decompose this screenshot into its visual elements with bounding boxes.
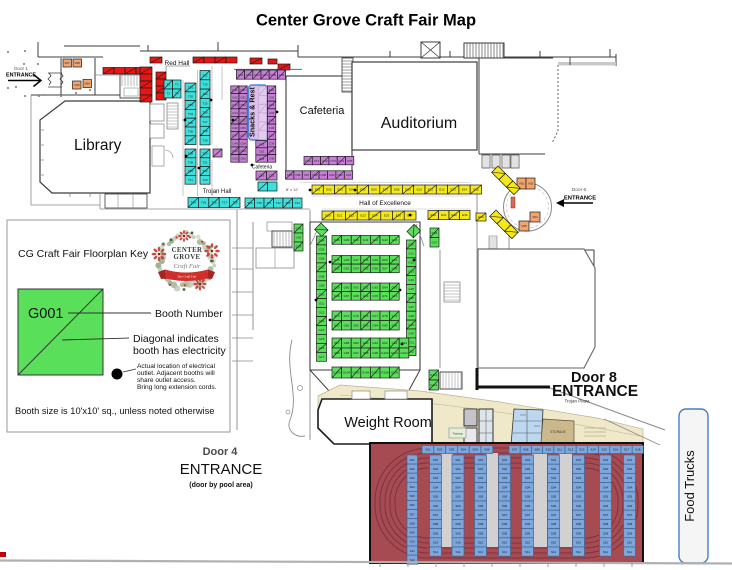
- svg-text:G70: G70: [372, 294, 378, 298]
- svg-text:V04: V04: [85, 82, 91, 86]
- svg-text:S09: S09: [525, 531, 531, 535]
- svg-text:C40: C40: [269, 157, 275, 161]
- svg-text:G77: G77: [372, 314, 378, 318]
- svg-text:S10: S10: [551, 541, 557, 545]
- svg-text:S11: S11: [603, 550, 608, 554]
- svg-text:G69: G69: [363, 294, 369, 298]
- svg-text:G05: G05: [319, 248, 325, 252]
- svg-text:G39: G39: [344, 238, 350, 242]
- svg-text:S06: S06: [433, 504, 439, 508]
- svg-text:S09: S09: [433, 531, 439, 535]
- svg-text:T01: T01: [188, 86, 194, 90]
- svg-text:C85: C85: [287, 173, 293, 177]
- svg-text:S07: S07: [627, 513, 633, 517]
- svg-text:S03: S03: [410, 476, 416, 480]
- svg-text:G92: G92: [382, 341, 388, 345]
- svg-text:S08: S08: [523, 448, 529, 452]
- svg-text:S10: S10: [433, 541, 439, 545]
- svg-text:E02: E02: [326, 188, 332, 192]
- svg-text:S06: S06: [455, 504, 461, 508]
- svg-text:E07: E07: [383, 188, 389, 192]
- svg-text:ENTRANCE: ENTRANCE: [564, 196, 596, 202]
- svg-text:G24: G24: [408, 278, 414, 282]
- svg-text:C31: C31: [269, 88, 275, 92]
- svg-text:S06: S06: [525, 504, 531, 508]
- svg-text:G97: G97: [353, 351, 359, 355]
- svg-text:S10: S10: [576, 541, 582, 545]
- svg-text:Cafeteria: Cafeteria: [300, 105, 346, 117]
- svg-text:G100: G100: [381, 351, 389, 355]
- svg-text:T17: T17: [202, 120, 208, 124]
- svg-text:S07: S07: [455, 513, 461, 517]
- svg-text:S08: S08: [502, 522, 508, 526]
- svg-text:T28: T28: [232, 201, 238, 205]
- svg-text:E01: E01: [315, 188, 321, 192]
- svg-text:G42: G42: [372, 238, 378, 242]
- svg-text:S04: S04: [576, 485, 582, 489]
- svg-text:G105: G105: [352, 371, 360, 375]
- svg-text:G61: G61: [353, 286, 359, 290]
- svg-text:S05: S05: [576, 495, 582, 499]
- svg-text:booth has electricity: booth has electricity: [133, 345, 227, 357]
- svg-text:G03: G03: [296, 245, 302, 249]
- svg-text:C01: C01: [238, 73, 244, 77]
- svg-text:T29: T29: [247, 201, 253, 205]
- svg-text:S04: S04: [551, 485, 557, 489]
- svg-text:T20: T20: [202, 152, 208, 156]
- svg-text:T09: T09: [188, 160, 194, 164]
- svg-text:G46: G46: [344, 258, 350, 262]
- svg-text:G66: G66: [334, 294, 340, 298]
- svg-text:G44: G44: [392, 238, 398, 242]
- svg-text:Door 1: Door 1: [14, 66, 28, 71]
- svg-text:S01: S01: [627, 458, 633, 462]
- svg-text:T31: T31: [266, 201, 272, 205]
- svg-text:S07: S07: [410, 512, 416, 516]
- svg-text:G86: G86: [392, 323, 398, 327]
- svg-text:S02: S02: [502, 467, 508, 471]
- svg-text:S18: S18: [635, 448, 641, 452]
- svg-text:S09: S09: [534, 448, 540, 452]
- svg-text:S07: S07: [433, 513, 439, 517]
- svg-text:T30: T30: [257, 201, 263, 205]
- svg-text:T15: T15: [202, 101, 208, 105]
- svg-text:S05: S05: [478, 495, 484, 499]
- svg-text:G111: G111: [430, 383, 437, 387]
- svg-text:S01: S01: [502, 458, 508, 462]
- svg-text:G60: G60: [344, 286, 350, 290]
- svg-text:G27: G27: [408, 305, 414, 309]
- svg-text:C57: C57: [240, 134, 246, 138]
- svg-text:S16: S16: [613, 448, 619, 452]
- svg-text:G52: G52: [334, 267, 340, 271]
- svg-text:ENTRANCE: ENTRANCE: [552, 383, 638, 400]
- svg-text:G001: G001: [28, 306, 63, 322]
- svg-text:S02: S02: [551, 467, 557, 471]
- svg-text:G56: G56: [372, 267, 378, 271]
- svg-text:E06: E06: [371, 188, 377, 192]
- svg-text:S09: S09: [502, 531, 508, 535]
- svg-text:S05: S05: [525, 495, 531, 499]
- svg-text:S07: S07: [603, 513, 609, 517]
- svg-text:share outlet access.: share outlet access.: [137, 377, 196, 384]
- svg-text:T03: T03: [188, 103, 194, 107]
- svg-text:C42: C42: [232, 96, 238, 100]
- svg-text:C05: C05: [271, 73, 277, 77]
- svg-text:G32: G32: [408, 349, 414, 353]
- svg-text:C34: C34: [269, 111, 275, 115]
- svg-text:S02: S02: [525, 467, 531, 471]
- svg-text:E21: E21: [337, 214, 343, 218]
- svg-text:S08: S08: [455, 522, 461, 526]
- svg-text:G107: G107: [372, 371, 380, 375]
- svg-text:C73: C73: [330, 159, 336, 163]
- svg-text:S04: S04: [502, 485, 508, 489]
- svg-text:S01: S01: [576, 458, 582, 462]
- svg-text:Dec Craft Fair: Dec Craft Fair: [176, 275, 197, 279]
- svg-text:S01: S01: [455, 458, 461, 462]
- svg-text:T33: T33: [285, 201, 291, 205]
- svg-text:T34: T34: [295, 201, 301, 205]
- svg-text:T22: T22: [202, 169, 208, 173]
- svg-text:S05: S05: [603, 495, 609, 499]
- svg-text:S10: S10: [525, 541, 531, 545]
- svg-text:G30: G30: [408, 332, 414, 336]
- svg-text:S11: S11: [478, 550, 483, 554]
- svg-text:S03: S03: [551, 476, 557, 480]
- svg-text:S06: S06: [410, 503, 416, 507]
- svg-text:T14: T14: [202, 92, 208, 96]
- svg-text:T04: T04: [188, 112, 194, 116]
- svg-text:S05: S05: [455, 495, 461, 499]
- svg-text:T3: T3: [166, 92, 170, 96]
- svg-text:S03: S03: [627, 476, 633, 480]
- svg-text:C80: C80: [258, 174, 264, 178]
- svg-text:S05: S05: [433, 495, 439, 499]
- svg-text:S10: S10: [410, 540, 416, 544]
- svg-text:G96: G96: [344, 351, 350, 355]
- svg-text:T10: T10: [188, 169, 194, 173]
- svg-text:T16: T16: [202, 111, 208, 115]
- svg-text:E26: E26: [396, 214, 402, 218]
- svg-text:S05: S05: [551, 495, 557, 499]
- svg-text:C81: C81: [269, 174, 275, 178]
- svg-text:S01: S01: [425, 448, 431, 452]
- svg-text:S02: S02: [437, 448, 443, 452]
- svg-text:E15: E15: [473, 188, 479, 192]
- svg-text:C52: C52: [240, 96, 246, 100]
- svg-text:S17: S17: [624, 448, 630, 452]
- svg-text:G15: G15: [319, 337, 325, 341]
- svg-text:C60: C60: [240, 157, 246, 161]
- svg-text:G74: G74: [344, 314, 350, 318]
- svg-text:C91: C91: [337, 173, 343, 177]
- svg-text:G12: G12: [319, 310, 325, 314]
- svg-text:Booth Number: Booth Number: [155, 308, 223, 320]
- svg-text:S10: S10: [502, 541, 508, 545]
- svg-text:G53: G53: [344, 267, 350, 271]
- svg-text:C50: C50: [232, 157, 238, 161]
- svg-text:C88: C88: [312, 173, 318, 177]
- svg-text:S08: S08: [433, 522, 439, 526]
- svg-text:G58: G58: [392, 267, 398, 271]
- svg-text:C90: C90: [329, 173, 335, 177]
- svg-text:S02: S02: [433, 467, 439, 471]
- svg-text:G25: G25: [408, 287, 414, 291]
- svg-text:S10: S10: [478, 541, 484, 545]
- svg-text:T08: T08: [188, 152, 194, 156]
- svg-text:C06: C06: [279, 73, 285, 77]
- svg-text:S06: S06: [484, 448, 490, 452]
- svg-text:C62: C62: [259, 150, 265, 154]
- svg-text:G104: G104: [343, 371, 351, 375]
- svg-text:T18: T18: [202, 129, 208, 133]
- svg-text:T05: T05: [188, 121, 194, 125]
- svg-text:G103: G103: [333, 371, 341, 375]
- svg-text:E31: E31: [441, 213, 447, 217]
- svg-text:G16: G16: [319, 346, 325, 350]
- svg-text:Trojan Plaza: Trojan Plaza: [564, 399, 590, 404]
- svg-text:G49: G49: [372, 258, 378, 262]
- svg-text:E09: E09: [405, 188, 411, 192]
- svg-text:T19: T19: [202, 139, 208, 143]
- svg-text:S11: S11: [576, 550, 581, 554]
- svg-text:G26: G26: [408, 296, 414, 300]
- svg-text:G84: G84: [372, 323, 378, 327]
- svg-text:C35: C35: [269, 118, 275, 122]
- svg-text:S01: S01: [478, 458, 484, 462]
- svg-text:G98: G98: [363, 351, 369, 355]
- svg-text:S11: S11: [455, 550, 460, 554]
- svg-text:V08: V08: [75, 61, 81, 65]
- svg-text:Actual location of electrical: Actual location of electrical: [137, 363, 216, 370]
- svg-text:G109: G109: [391, 371, 399, 375]
- svg-text:S08: S08: [576, 522, 582, 526]
- svg-text:T02: T02: [188, 94, 194, 98]
- svg-text:S02: S02: [410, 467, 416, 471]
- svg-text:S07: S07: [478, 513, 484, 517]
- svg-text:C03: C03: [254, 73, 260, 77]
- svg-text:C74: C74: [339, 159, 345, 163]
- svg-text:V09: V09: [74, 83, 80, 87]
- svg-text:V04: V04: [532, 215, 538, 219]
- svg-text:Library: Library: [74, 137, 122, 154]
- svg-text:T13: T13: [202, 83, 208, 87]
- svg-text:G89: G89: [353, 341, 359, 345]
- svg-text:C63: C63: [259, 157, 265, 161]
- svg-text:G07: G07: [319, 266, 325, 270]
- svg-text:G04: G04: [319, 239, 325, 243]
- svg-text:T12: T12: [202, 73, 208, 77]
- svg-text:G41: G41: [363, 238, 369, 242]
- svg-text:S06: S06: [478, 504, 484, 508]
- svg-text:G38: G38: [334, 238, 340, 242]
- svg-text:Craft Fair: Craft Fair: [174, 263, 201, 270]
- svg-text:ENTRANCE: ENTRANCE: [6, 73, 36, 79]
- svg-text:S08: S08: [603, 522, 609, 526]
- svg-text:G43: G43: [382, 238, 388, 242]
- svg-text:S01: S01: [551, 458, 557, 462]
- svg-text:C37: C37: [269, 134, 275, 138]
- svg-text:G40: G40: [353, 238, 359, 242]
- svg-text:G106: G106: [362, 371, 370, 375]
- svg-text:G21: G21: [408, 252, 414, 256]
- svg-text:C87: C87: [304, 173, 310, 177]
- svg-text:E30: E30: [431, 213, 437, 217]
- svg-text:S12: S12: [568, 448, 574, 452]
- svg-text:G57: G57: [382, 267, 388, 271]
- svg-text:S08: S08: [410, 522, 416, 526]
- svg-text:G85: G85: [382, 323, 388, 327]
- svg-text:S08: S08: [627, 522, 633, 526]
- svg-text:E33: E33: [462, 213, 468, 217]
- svg-text:S03: S03: [478, 476, 484, 480]
- svg-text:S09: S09: [551, 531, 557, 535]
- svg-text:Booth size is 10'x10' sq., unl: Booth size is 10'x10' sq., unless noted …: [15, 406, 214, 416]
- svg-text:G78: G78: [382, 314, 388, 318]
- svg-text:S11: S11: [410, 549, 415, 553]
- svg-text:S07: S07: [551, 513, 557, 517]
- svg-text:C02: C02: [246, 73, 252, 77]
- svg-text:E14: E14: [462, 188, 468, 192]
- svg-text:G10: G10: [319, 292, 325, 296]
- svg-text:Red Hall: Red Hall: [165, 60, 190, 67]
- svg-text:C59: C59: [240, 149, 246, 153]
- svg-text:S11: S11: [525, 550, 530, 554]
- svg-text:S04: S04: [410, 485, 416, 489]
- svg-text:T32: T32: [276, 201, 282, 205]
- svg-text:G02: G02: [296, 236, 302, 240]
- svg-text:Weight Room: Weight Room: [344, 415, 432, 431]
- svg-text:G80: G80: [334, 323, 340, 327]
- svg-text:C56: C56: [240, 126, 246, 130]
- svg-text:G54: G54: [353, 267, 359, 271]
- svg-text:S09: S09: [455, 531, 461, 535]
- svg-text:C70: C70: [305, 159, 311, 163]
- svg-text:T26: T26: [211, 201, 217, 205]
- svg-text:S11: S11: [502, 550, 507, 554]
- svg-text:S07: S07: [502, 513, 508, 517]
- svg-text:Center Grove Craft Fair Map: Center Grove Craft Fair Map: [256, 12, 476, 30]
- svg-text:E05: E05: [360, 188, 366, 192]
- svg-text:C36: C36: [269, 126, 275, 130]
- svg-text:G31: G31: [408, 341, 414, 345]
- svg-text:T4: T4: [175, 92, 179, 96]
- svg-text:E23: E23: [360, 214, 366, 218]
- svg-text:S10: S10: [546, 448, 552, 452]
- svg-text:E25: E25: [384, 214, 390, 218]
- svg-text:S05: S05: [472, 448, 478, 452]
- svg-text:S09: S09: [410, 531, 416, 535]
- svg-text:S01: S01: [433, 458, 439, 462]
- svg-text:V07: V07: [65, 61, 71, 65]
- svg-text:G71: G71: [382, 294, 388, 298]
- svg-text:CENTER: CENTER: [172, 247, 203, 254]
- svg-text:E20: E20: [325, 214, 331, 218]
- svg-text:V05: V05: [521, 224, 527, 228]
- svg-text:C32: C32: [269, 96, 275, 100]
- svg-text:S13: S13: [579, 448, 585, 452]
- svg-text:G59: G59: [334, 286, 340, 290]
- svg-text:Door 4: Door 4: [203, 446, 239, 458]
- svg-text:C33: C33: [269, 103, 275, 107]
- svg-text:S07: S07: [512, 448, 518, 452]
- svg-text:T21: T21: [202, 160, 208, 164]
- svg-text:ENTRANCE: ENTRANCE: [180, 461, 263, 478]
- svg-text:C51: C51: [240, 88, 246, 92]
- svg-text:C75: C75: [347, 159, 353, 163]
- svg-text:G102: G102: [400, 351, 408, 355]
- svg-text:Training: Training: [452, 432, 462, 436]
- svg-text:S03: S03: [455, 476, 461, 480]
- svg-text:S06: S06: [502, 504, 508, 508]
- svg-text:G67: G67: [344, 294, 350, 298]
- svg-text:G17: G17: [319, 355, 325, 359]
- svg-text:S11: S11: [551, 550, 556, 554]
- svg-text:C41: C41: [232, 88, 238, 92]
- svg-text:G90: G90: [363, 341, 369, 345]
- svg-text:C04: C04: [262, 73, 268, 77]
- svg-text:G36: G36: [432, 231, 438, 235]
- svg-text:S04: S04: [478, 485, 484, 489]
- svg-text:C61: C61: [259, 142, 265, 146]
- svg-text:C48: C48: [232, 141, 238, 145]
- svg-text:S11: S11: [557, 448, 562, 452]
- svg-text:S07: S07: [525, 513, 531, 517]
- svg-text:S04: S04: [525, 485, 531, 489]
- svg-text:C43: C43: [232, 103, 238, 107]
- svg-text:G87: G87: [334, 341, 340, 345]
- svg-text:G50: G50: [382, 258, 388, 262]
- svg-text:E08: E08: [394, 188, 400, 192]
- svg-text:C71: C71: [314, 159, 320, 163]
- svg-text:G62: G62: [363, 286, 369, 290]
- svg-text:Hall of Excellence: Hall of Excellence: [359, 200, 411, 207]
- svg-text:S06: S06: [576, 504, 582, 508]
- svg-text:(door by pool area): (door by pool area): [189, 482, 252, 489]
- svg-text:G01: G01: [296, 227, 302, 231]
- svg-text:Diagonal indicates: Diagonal indicates: [133, 333, 219, 345]
- svg-text:T1: T1: [166, 83, 170, 87]
- svg-text:G47: G47: [353, 258, 359, 262]
- svg-text:Bring long extension cords.: Bring long extension cords.: [137, 384, 217, 391]
- svg-text:G110: G110: [430, 373, 437, 377]
- svg-text:T27: T27: [222, 201, 228, 205]
- svg-text:G82: G82: [353, 323, 359, 327]
- svg-text:C54: C54: [240, 111, 246, 115]
- svg-text:G20: G20: [408, 243, 414, 247]
- svg-text:E32: E32: [452, 213, 458, 217]
- svg-text:G45: G45: [334, 258, 340, 262]
- svg-text:G37: G37: [432, 240, 438, 244]
- svg-text:E03: E03: [338, 188, 344, 192]
- svg-text:T25: T25: [201, 201, 207, 205]
- svg-text:S04: S04: [433, 485, 439, 489]
- svg-text:E22: E22: [349, 214, 355, 218]
- svg-text:S09: S09: [576, 531, 582, 535]
- svg-text:G91: G91: [372, 341, 378, 345]
- svg-text:S15: S15: [602, 448, 608, 452]
- svg-text:S03: S03: [502, 476, 508, 480]
- svg-text:T11: T11: [188, 178, 193, 182]
- svg-text:C89: C89: [321, 173, 327, 177]
- svg-text:G99: G99: [372, 351, 378, 355]
- svg-text:S05: S05: [502, 495, 508, 499]
- svg-text:G14: G14: [319, 328, 325, 332]
- svg-text:G93: G93: [392, 341, 398, 345]
- svg-text:T24: T24: [191, 201, 197, 205]
- svg-text:S06: S06: [551, 504, 557, 508]
